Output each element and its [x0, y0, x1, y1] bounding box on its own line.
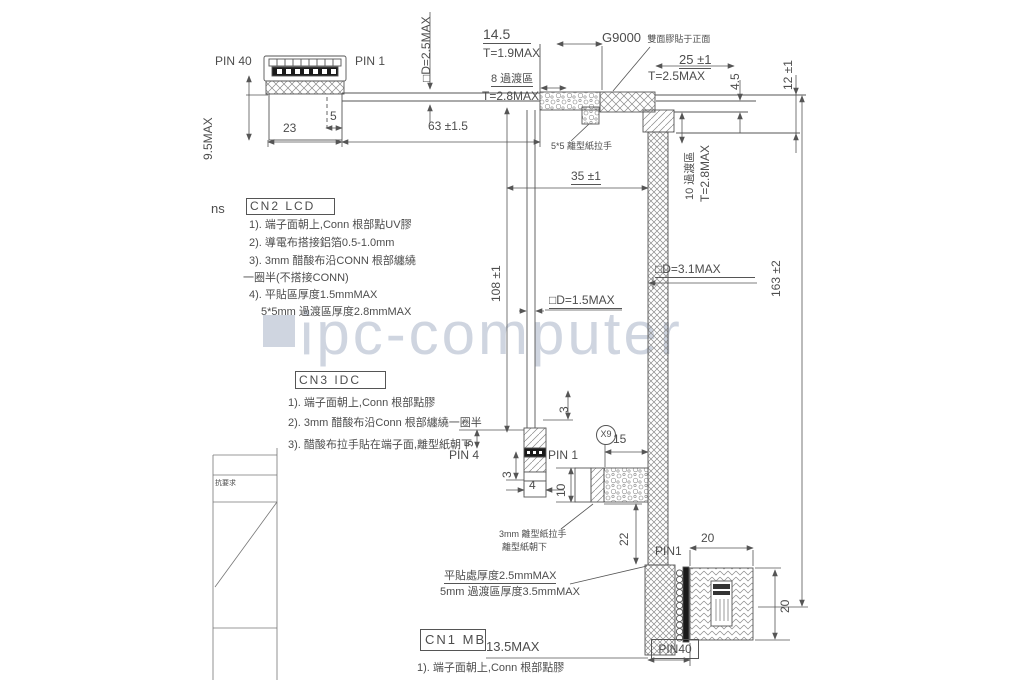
- dim-t2-8max-right: T=2.8MAX: [699, 145, 712, 202]
- cn3-title: CN3 IDC: [295, 371, 386, 389]
- dim-od-3-1max: □D=3.1MAX: [655, 263, 755, 278]
- dim-5-side: 5: [463, 440, 476, 447]
- dim-63: 63 ±1.5: [428, 120, 468, 133]
- dim-4-5: 4.5: [729, 73, 742, 90]
- dim-20-right: 20: [779, 600, 792, 613]
- transition-thickness-note: 5mm 過渡區厚度3.5mmMAX: [440, 586, 580, 598]
- g9000-desc: 雙面膠貼于正面: [647, 34, 710, 44]
- cn1-note-1: 1). 端子面朝上,Conn 根部點膠: [417, 662, 564, 674]
- dim-23: 23: [283, 122, 296, 135]
- cn1-title: CN1 MB: [420, 629, 486, 651]
- g9000-code: G9000: [602, 30, 641, 45]
- pin1-bot-label: PIN1: [655, 545, 682, 558]
- release-3mm-label-2: 離型紙朝下: [502, 543, 547, 553]
- dim-8-zone: 8 過渡區: [491, 73, 533, 87]
- dim-35: 35 ±1: [571, 170, 601, 185]
- dim-3-top: 3: [558, 406, 571, 413]
- drawing-page: ipc-computer: [0, 0, 1024, 680]
- flat-thickness-note: 平貼處厚度2.5mmMAX: [444, 570, 556, 584]
- dim-163: 163 ±2: [770, 260, 783, 297]
- dim-3-bot: 3: [501, 471, 514, 478]
- dim-12: 12 ±1: [782, 60, 795, 90]
- release-3mm-label-1: 3mm 離型紙拉手: [499, 530, 567, 540]
- dim-15: 15: [613, 433, 626, 446]
- g9000-label: G9000 雙面膠貼于正面: [602, 31, 710, 45]
- pin1-top-label: PIN 1: [355, 55, 385, 68]
- release-paper-block: [575, 468, 648, 502]
- dim-9-5max: 9.5MAX: [202, 117, 215, 160]
- ns-fragment: ns: [211, 202, 225, 216]
- dim-22: 22: [618, 533, 631, 546]
- cn2-title: CN2 LCD: [246, 198, 335, 215]
- dim-14-5: 14.5: [483, 27, 531, 44]
- dim-t2-5max: T=2.5MAX: [648, 70, 705, 83]
- pin1-mid-label: PIN 1: [548, 449, 578, 462]
- dim-t1-9max: T=1.9MAX: [483, 47, 540, 60]
- dim-13-5max: 13.5MAX: [486, 640, 539, 654]
- dim-25: 25 ±1: [679, 53, 711, 69]
- dim-5: 5: [330, 110, 337, 123]
- cn3-note-2: 2). 3mm 醋酸布沿Conn 根部纏繞一圈半: [288, 417, 482, 429]
- release-paper-5x5-label: 5*5 離型紙拉手: [551, 142, 612, 152]
- cn3-note-1: 1). 端子面朝上,Conn 根部點膠: [288, 397, 435, 409]
- cn2-note-3: 3). 3mm 醋酸布沿CONN 根部纏繞: [249, 255, 416, 267]
- cn2-note-2: 2). 導電布搭接鋁箔0.5-1.0mm: [249, 237, 394, 249]
- cable-od-dim: □D=2.5MAX: [420, 16, 433, 82]
- cn2-note-3b: 一圈半(不搭接CONN): [243, 272, 349, 284]
- top-connector: [264, 56, 346, 140]
- cn2-note-1: 1). 端子面朝上,Conn 根部點UV膠: [249, 219, 412, 231]
- left-table-note: 抗要求: [215, 480, 236, 488]
- dim-t2-8max-top: T=2.8MAX: [482, 90, 539, 103]
- cn3-note-3: 3). 醋酸布拉手貼在端子面,離型紙朝下: [288, 439, 472, 451]
- dim-20-top: 20: [701, 532, 714, 545]
- cn2-note-4: 4). 平貼區厚度1.5mmMAX: [249, 289, 377, 301]
- pin40-bot-label: PIN40: [651, 639, 699, 659]
- dim-4: 4: [529, 479, 536, 492]
- dim-od-1-5max: □D=1.5MAX: [549, 294, 622, 309]
- dim-108: 108 ±1: [490, 265, 503, 302]
- pin4-label: PIN 4: [449, 449, 479, 462]
- dim-10: 10: [555, 484, 568, 497]
- dim-10-zone: 10 過渡區: [684, 152, 696, 200]
- cn2-note-4b: 5*5mm 過渡區厚度2.8mmMAX: [261, 306, 411, 318]
- x9-text: X9: [600, 430, 611, 440]
- pin40-top-label: PIN 40: [215, 55, 252, 68]
